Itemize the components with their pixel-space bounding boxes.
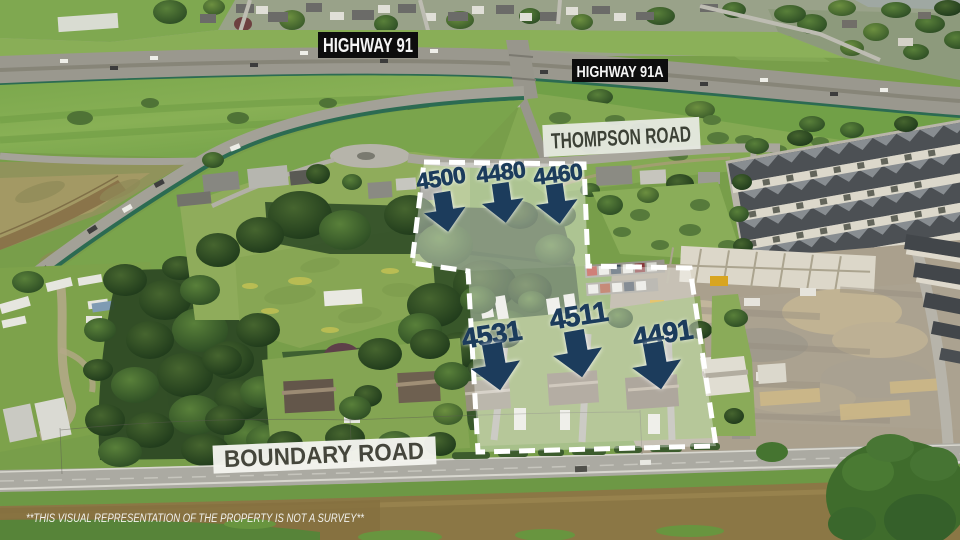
svg-text:**THIS VISUAL REPRESENTATION O: **THIS VISUAL REPRESENTATION OF THE PROP… <box>26 513 364 525</box>
svg-text:HIGHWAY 91: HIGHWAY 91 <box>323 35 413 57</box>
svg-text:HIGHWAY 91A: HIGHWAY 91A <box>577 64 664 81</box>
